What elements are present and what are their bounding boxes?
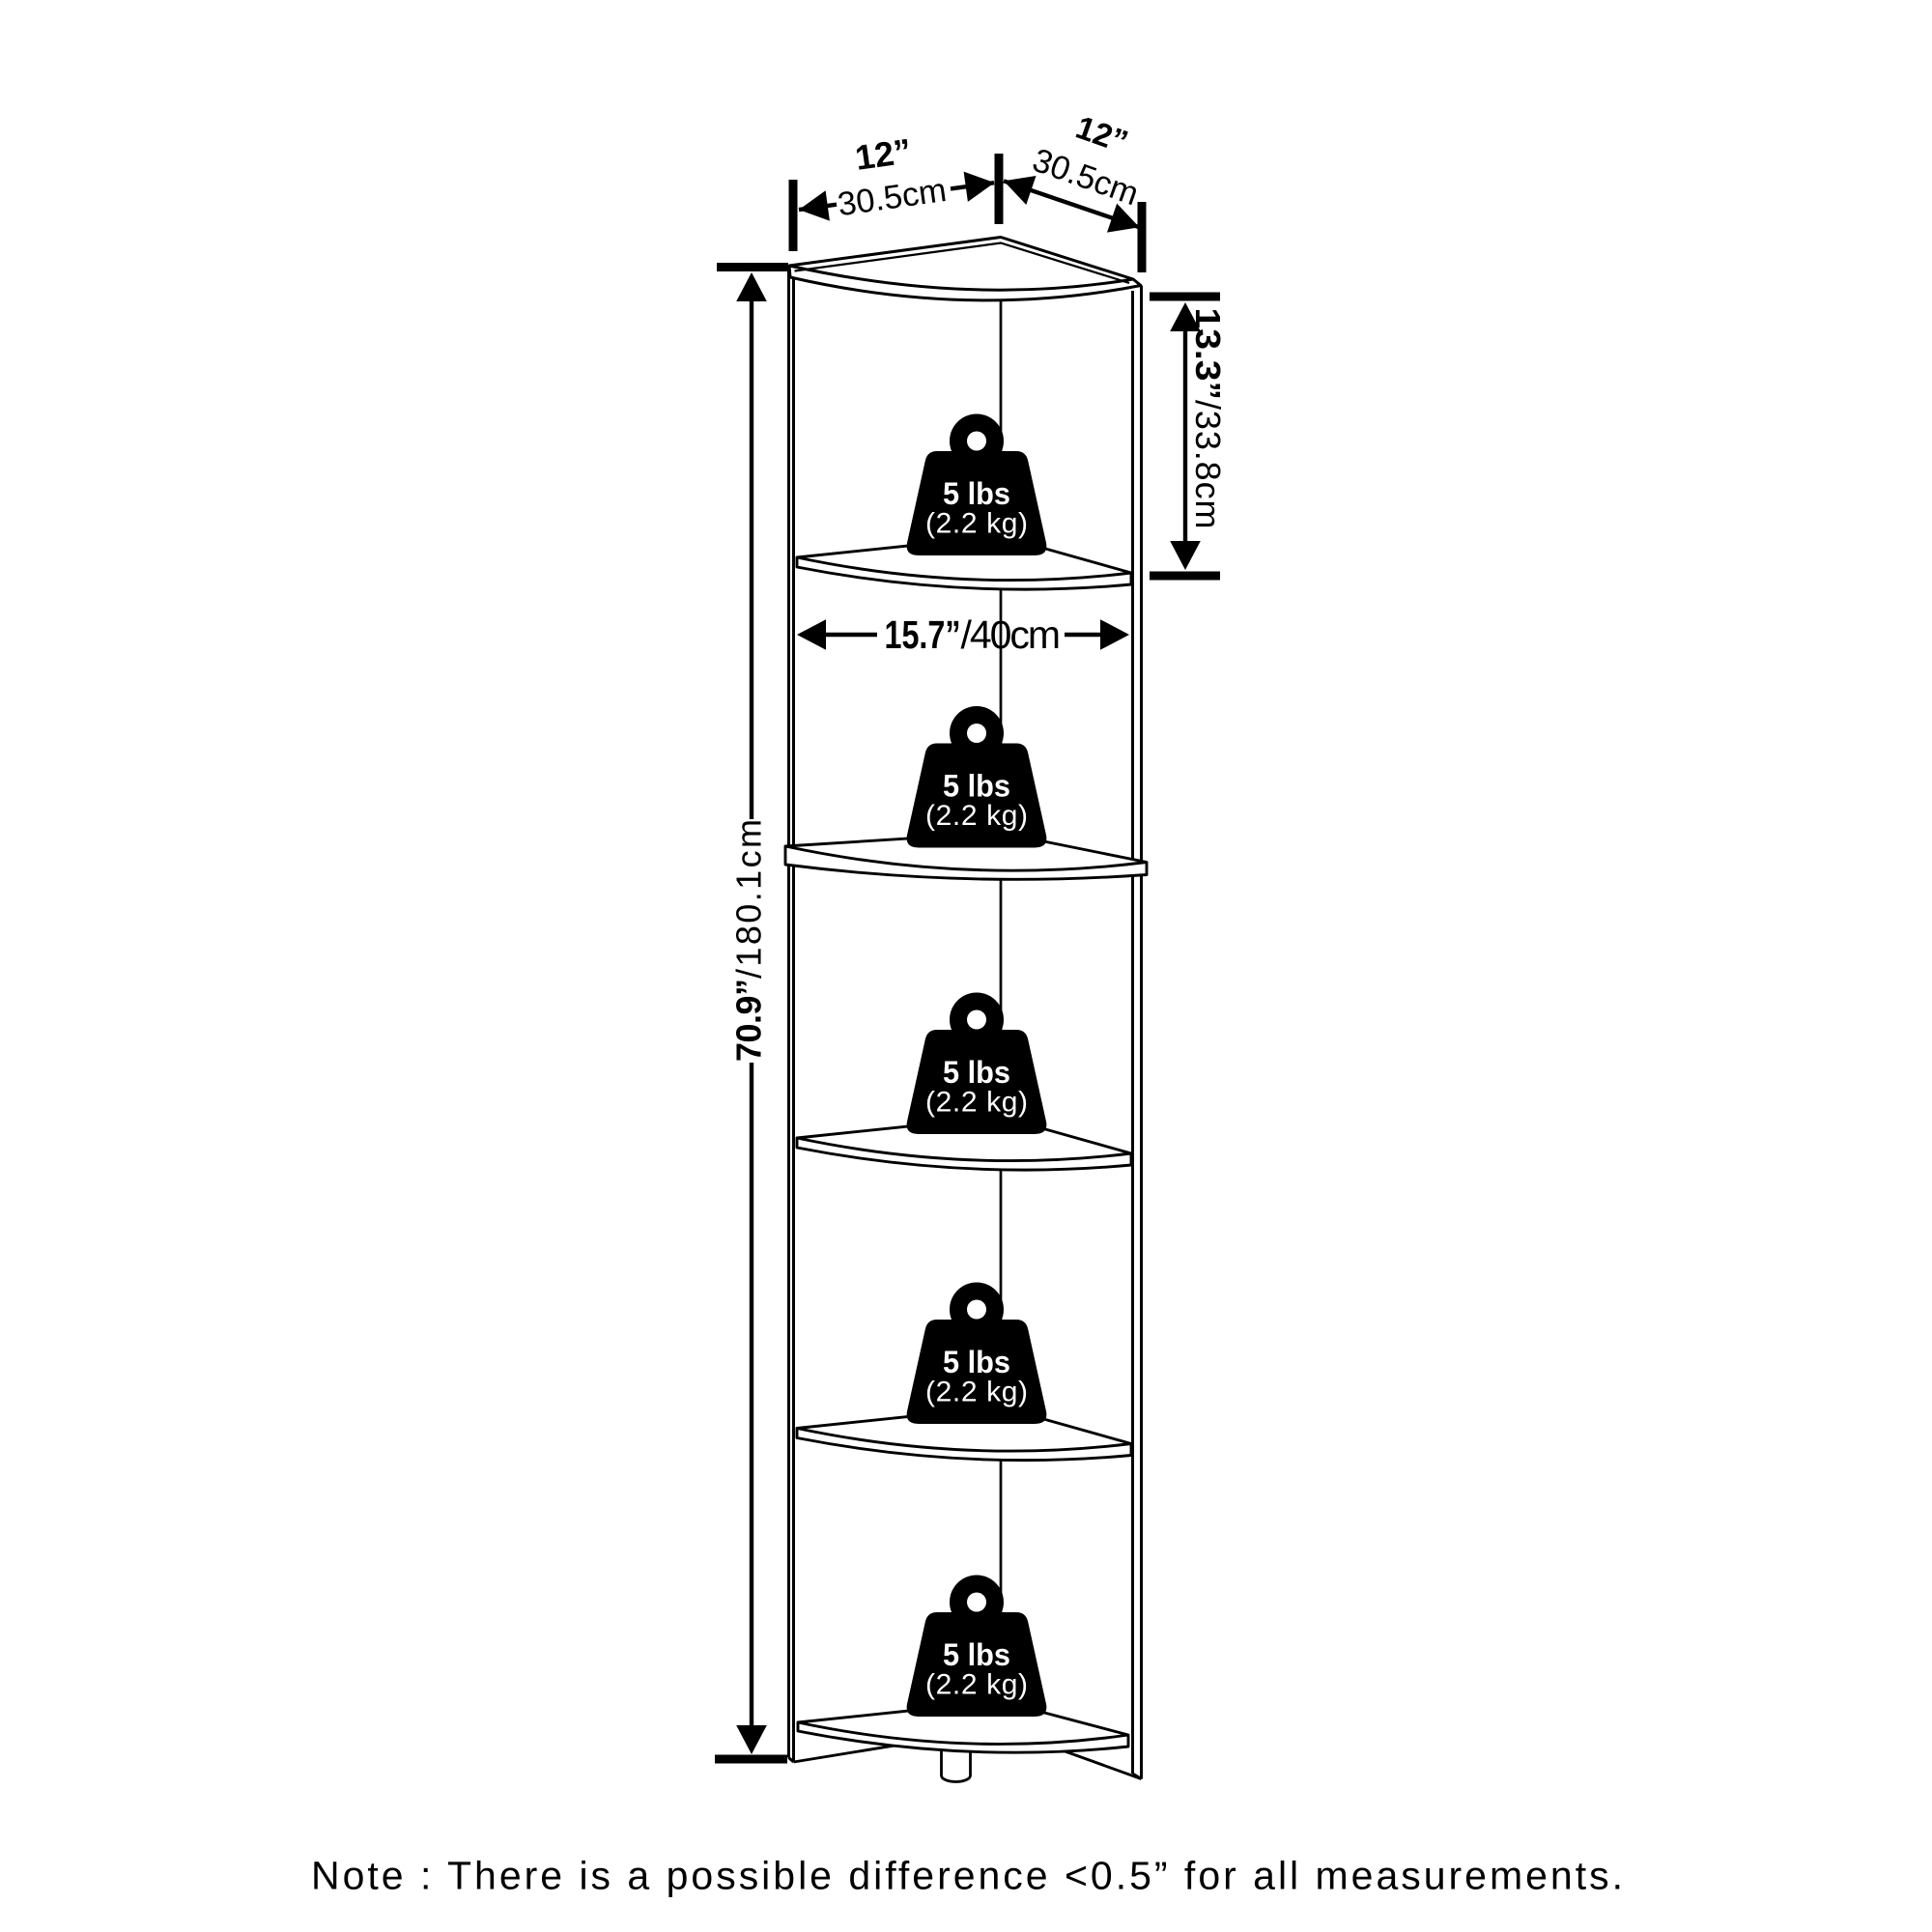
svg-text:5 lbs: 5 lbs <box>943 769 1010 804</box>
svg-text:13.3”: 13.3” <box>1188 308 1228 401</box>
svg-text:(2.2 kg): (2.2 kg) <box>925 1087 1028 1119</box>
svg-text:12”: 12” <box>853 130 914 178</box>
svg-text:5 lbs: 5 lbs <box>943 1055 1010 1090</box>
svg-text:5 lbs: 5 lbs <box>943 476 1010 511</box>
svg-text:(2.2 kg): (2.2 kg) <box>925 800 1028 832</box>
svg-text:70.9”: 70.9” <box>729 979 769 1062</box>
svg-text:5 lbs: 5 lbs <box>943 1637 1010 1672</box>
svg-text:/40cm: /40cm <box>961 612 1062 657</box>
svg-text:(2.2 kg): (2.2 kg) <box>925 1669 1028 1701</box>
svg-text:(2.2 kg): (2.2 kg) <box>925 1377 1028 1408</box>
svg-text:(2.2 kg): (2.2 kg) <box>925 508 1028 540</box>
svg-text:Note : There is a possible dif: Note : There is a possible difference <0… <box>311 1854 1623 1898</box>
svg-text:/180.1cm: /180.1cm <box>729 819 769 979</box>
svg-text:5 lbs: 5 lbs <box>943 1345 1010 1379</box>
svg-text:/33.8cm: /33.8cm <box>1188 400 1228 529</box>
svg-text:15.7”: 15.7” <box>885 612 961 657</box>
